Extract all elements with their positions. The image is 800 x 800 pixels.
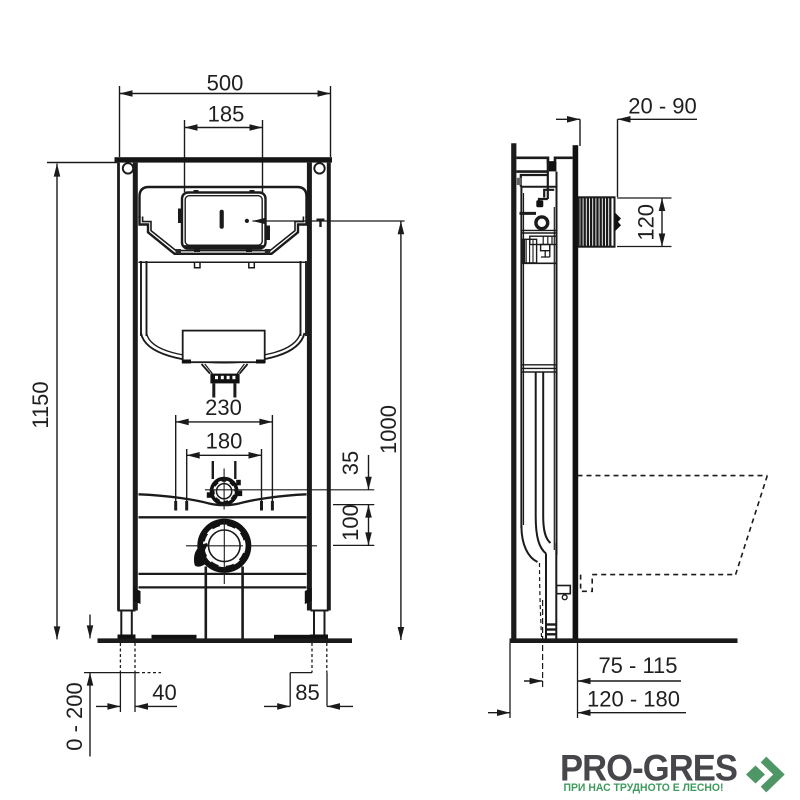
- svg-text:230: 230: [205, 395, 242, 420]
- svg-text:75 - 115: 75 - 115: [598, 653, 677, 678]
- svg-text:35: 35: [338, 451, 363, 475]
- svg-text:0 - 200: 0 - 200: [62, 682, 87, 751]
- svg-text:120 - 180: 120 - 180: [587, 687, 680, 712]
- svg-text:185: 185: [208, 102, 245, 127]
- svg-text:40: 40: [152, 680, 176, 705]
- svg-text:1000: 1000: [376, 405, 401, 454]
- svg-text:85: 85: [295, 680, 319, 705]
- svg-text:120: 120: [634, 204, 659, 241]
- svg-text:ПРИ НАС ТРУДНОТО Е ЛЕСНО!: ПРИ НАС ТРУДНОТО Е ЛЕСНО!: [564, 782, 724, 794]
- svg-text:20 - 90: 20 - 90: [628, 94, 697, 119]
- svg-text:500: 500: [207, 71, 244, 96]
- svg-text:180: 180: [206, 429, 243, 454]
- svg-text:1150: 1150: [28, 381, 53, 428]
- svg-text:100: 100: [338, 504, 363, 541]
